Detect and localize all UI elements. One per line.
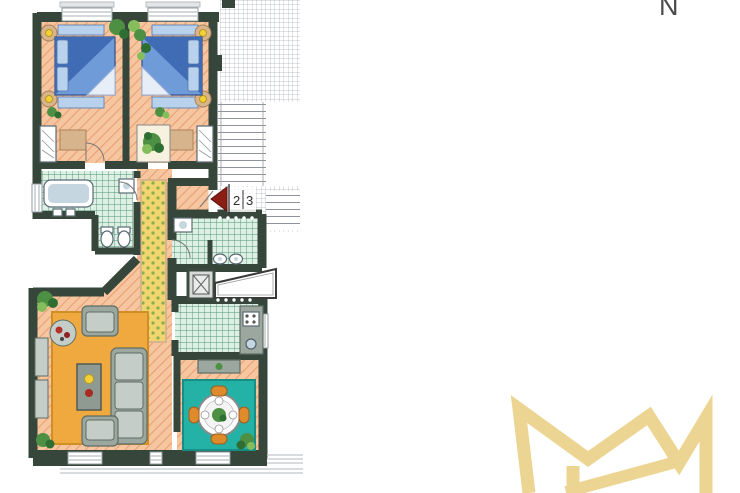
screenshot-canvas: 2 3 N [0,0,740,493]
mw-logo [0,0,740,493]
mw-monogram-icon [519,409,706,493]
